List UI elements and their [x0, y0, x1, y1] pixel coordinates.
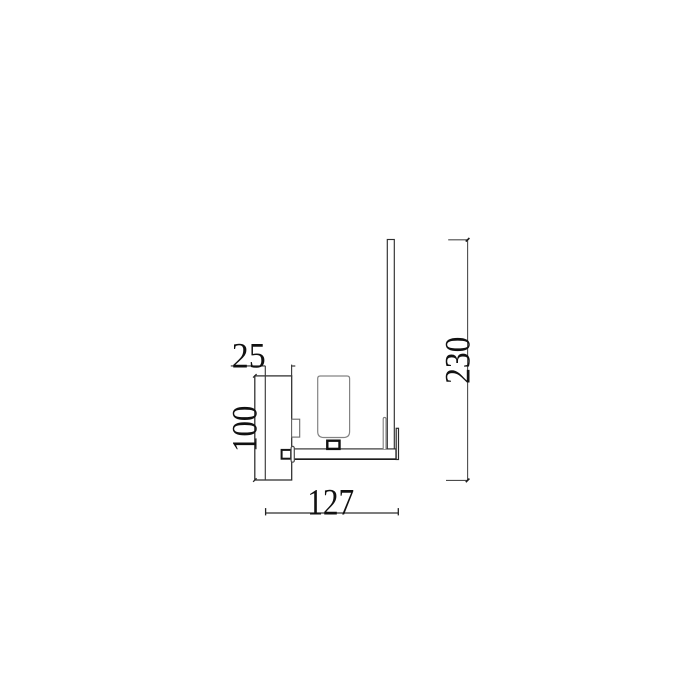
svg-text:127: 127 [307, 484, 354, 524]
svg-text:100: 100 [225, 406, 265, 452]
svg-text:230: 230 [439, 337, 478, 384]
svg-text:25: 25 [232, 335, 266, 375]
